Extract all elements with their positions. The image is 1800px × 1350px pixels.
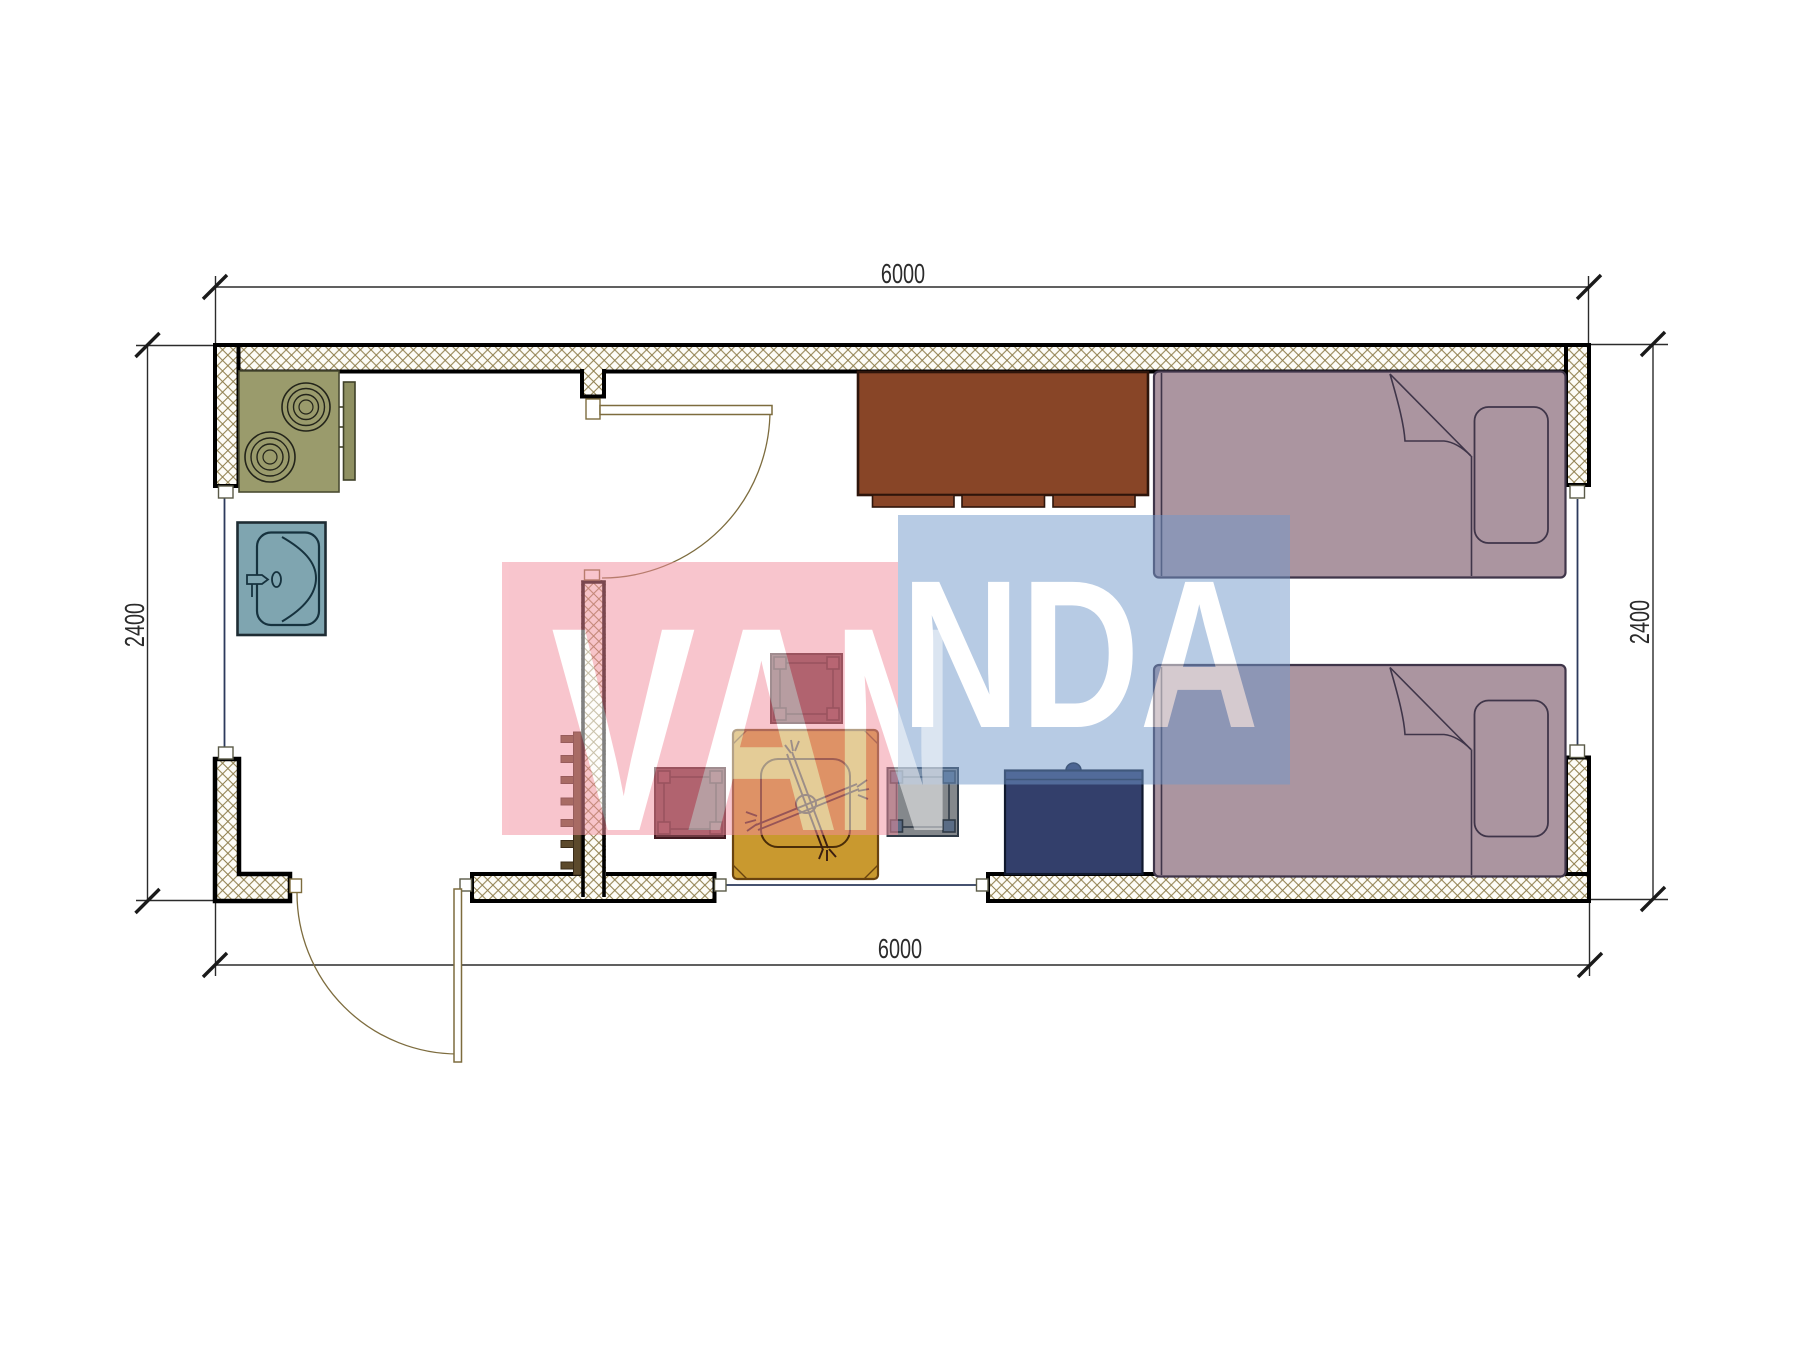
svg-text:A: A xyxy=(683,568,840,892)
svg-text:NDA: NDA xyxy=(901,537,1259,773)
svg-text:2400: 2400 xyxy=(120,603,151,647)
svg-text:6000: 6000 xyxy=(878,934,922,965)
svg-text:N: N xyxy=(834,567,954,892)
svg-text:6000: 6000 xyxy=(881,259,925,290)
svg-text:V: V xyxy=(551,568,697,892)
svg-text:2400: 2400 xyxy=(1625,600,1656,644)
